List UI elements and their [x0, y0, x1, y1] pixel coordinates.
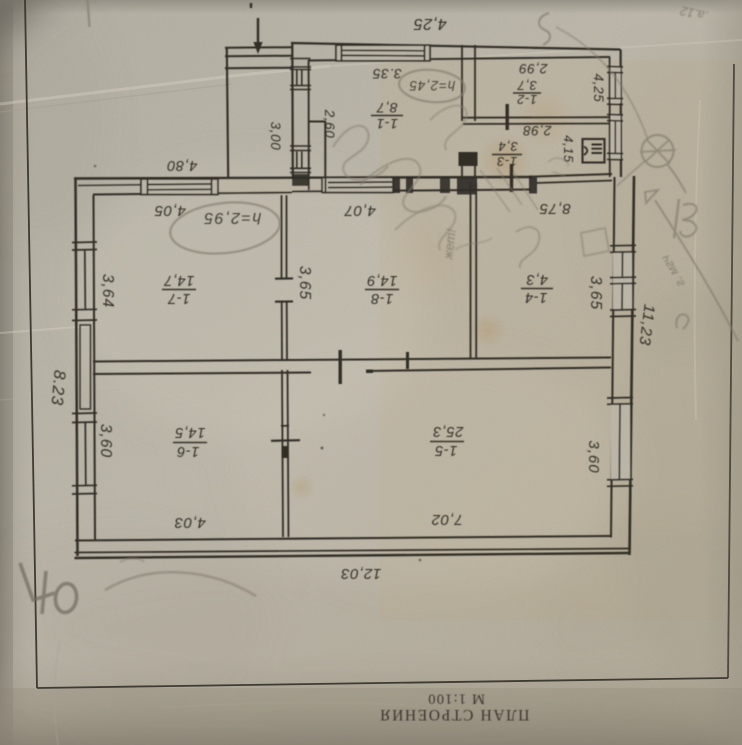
- svg-text:h=2,95: h=2,95: [203, 209, 261, 226]
- svg-text:14,9: 14,9: [367, 272, 398, 288]
- svg-text:14,7: 14,7: [163, 272, 194, 288]
- svg-text:25,3: 25,3: [433, 423, 465, 439]
- svg-text:4,3: 4,3: [526, 271, 548, 287]
- svg-text:12,03: 12,03: [341, 565, 382, 582]
- svg-text:3,64: 3,64: [99, 274, 116, 308]
- svg-text:4,25: 4,25: [591, 74, 606, 103]
- svg-text:1-4: 1-4: [525, 289, 548, 305]
- svg-text:1-7: 1-7: [167, 290, 190, 306]
- svg-text:8.23: 8.23: [47, 369, 68, 407]
- svg-text:3.35: 3.35: [372, 66, 402, 82]
- svg-text:3,00: 3,00: [268, 122, 283, 151]
- svg-text:ПЛАН СТРОЕНИЯ: ПЛАН СТРОЕНИЯ: [379, 706, 530, 723]
- svg-text:2,99: 2,99: [519, 61, 549, 76]
- svg-text:3,60: 3,60: [97, 424, 114, 458]
- svg-text:14,5: 14,5: [174, 424, 205, 440]
- svg-text:7,02: 7,02: [431, 511, 463, 528]
- svg-text:М 1:100: М 1:100: [427, 691, 485, 707]
- svg-text:4,03: 4,03: [174, 514, 206, 531]
- svg-text:3,7: 3,7: [517, 78, 537, 93]
- svg-text:4,07: 4,07: [344, 202, 376, 219]
- svg-text:1-6: 1-6: [176, 443, 199, 459]
- svg-text:4,25: 4,25: [413, 15, 447, 32]
- svg-text:3,60: 3,60: [585, 440, 602, 473]
- svg-text:4,80: 4,80: [167, 157, 198, 173]
- svg-text:8,75: 8,75: [539, 200, 571, 217]
- svg-text:3,65: 3,65: [296, 266, 313, 300]
- svg-text:h=2,45: h=2,45: [409, 78, 455, 93]
- svg-text:1-1: 1-1: [376, 116, 398, 132]
- svg-text:8,7: 8,7: [376, 100, 398, 116]
- svg-text:2,60: 2,60: [322, 109, 337, 139]
- svg-text:1-2: 1-2: [517, 92, 538, 107]
- svg-text:1-5: 1-5: [434, 442, 457, 458]
- svg-text:3,4: 3,4: [498, 139, 518, 154]
- svg-text:1-3: 1-3: [497, 154, 518, 169]
- svg-text:3,65: 3,65: [587, 276, 604, 310]
- svg-text:1-8: 1-8: [371, 290, 394, 306]
- svg-text:2,98: 2,98: [523, 123, 553, 138]
